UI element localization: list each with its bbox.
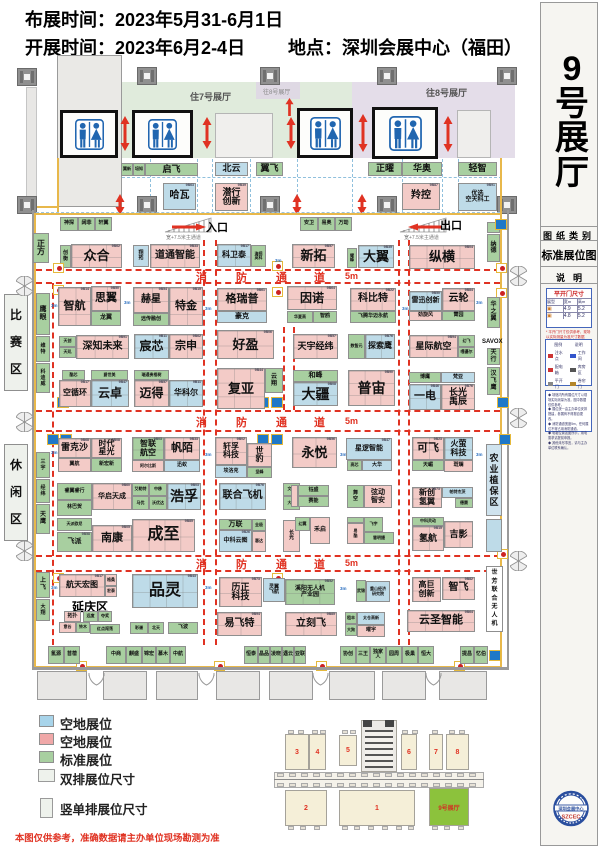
svg-text:深圳会展中心: 深圳会展中心 — [558, 805, 584, 812]
svg-text:SZCEC: SZCEC — [562, 815, 581, 821]
